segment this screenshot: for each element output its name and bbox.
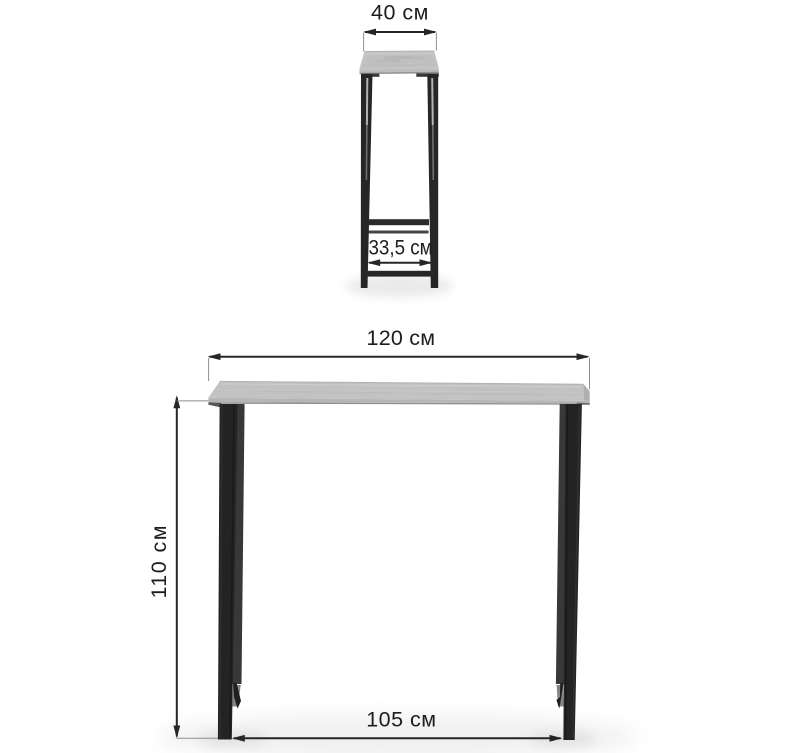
- svg-text:120 см: 120 см: [367, 326, 436, 350]
- svg-text:33,5 см: 33,5 см: [369, 236, 433, 260]
- svg-text:110 см: 110 см: [147, 526, 171, 599]
- svg-text:40 см: 40 см: [371, 0, 429, 24]
- svg-text:105 см: 105 см: [366, 708, 436, 732]
